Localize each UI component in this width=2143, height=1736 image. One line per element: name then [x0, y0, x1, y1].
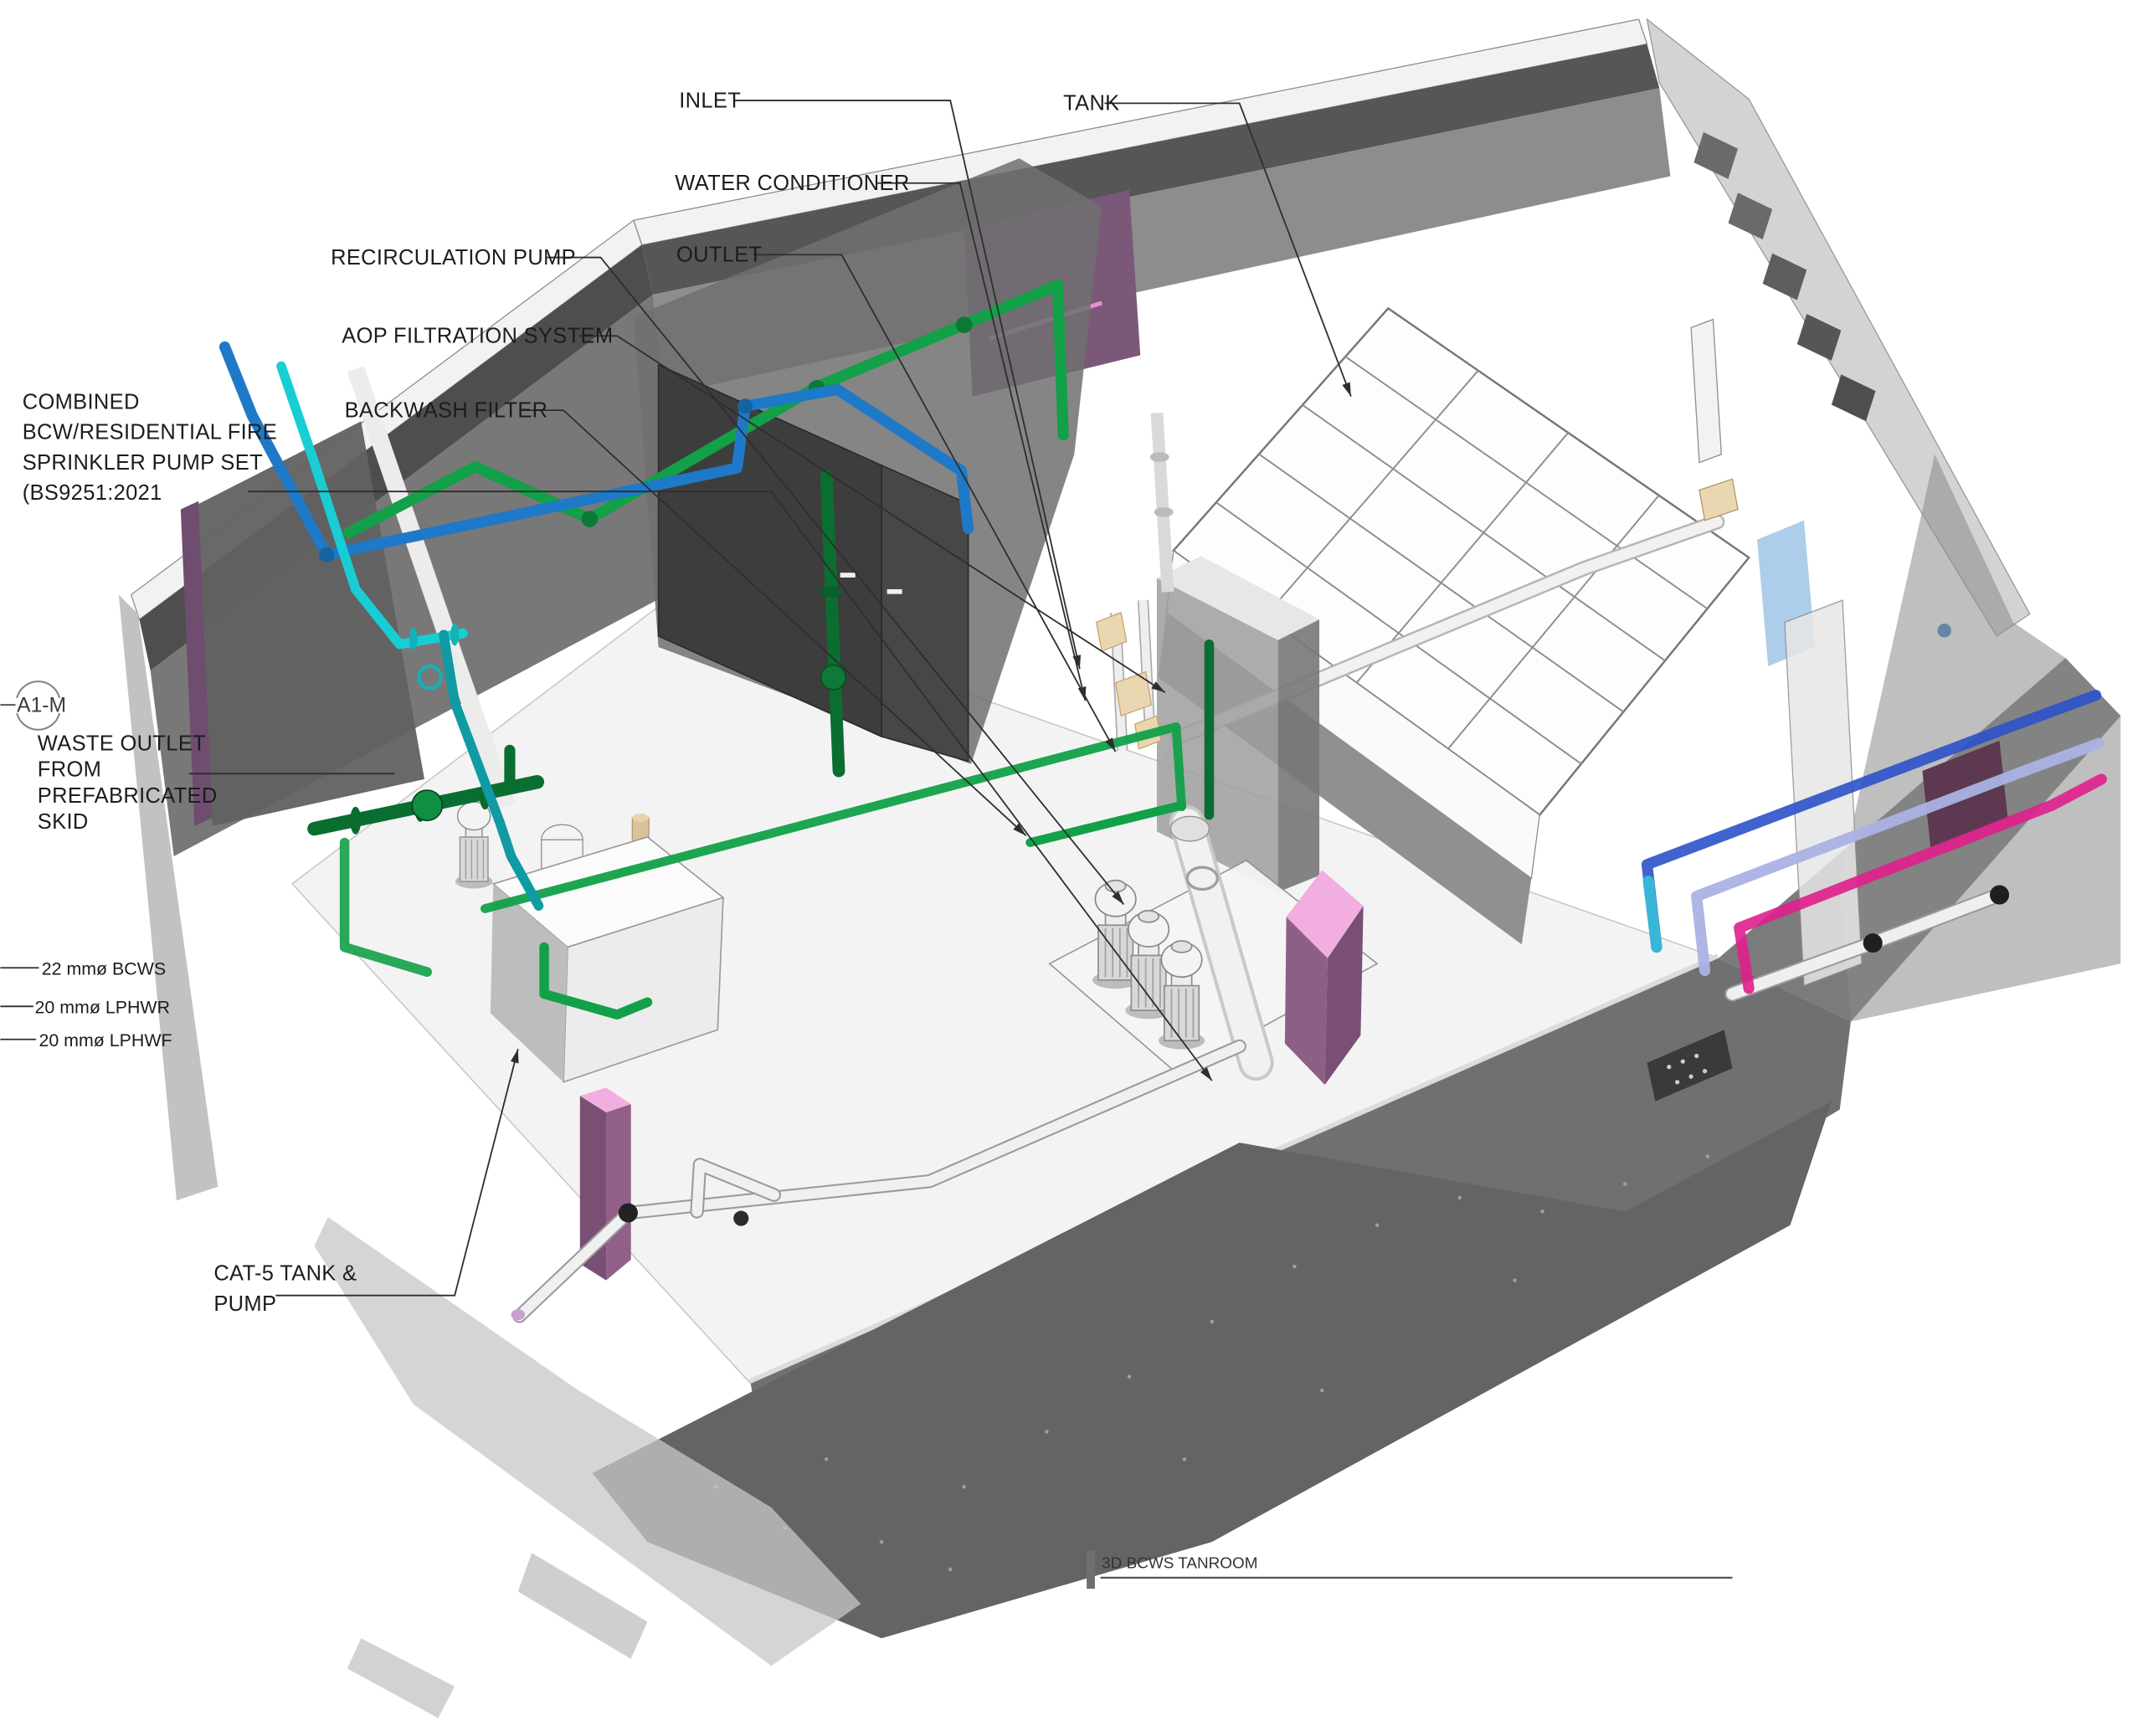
footing-step: [518, 1553, 648, 1659]
green-flange: [820, 587, 841, 598]
door-handle: [887, 589, 902, 594]
green-valve-body: [412, 790, 442, 820]
black-joint: [733, 1211, 748, 1226]
svg-text:PUMP: PUMP: [213, 1292, 276, 1316]
pipe-ring: [1154, 507, 1174, 517]
footing-step: [347, 1638, 455, 1718]
bim-3d-view: INLET WATER CONDITIONER OUTLET RECIRCULA…: [0, 0, 2143, 1736]
view-title-bar: [1087, 1550, 1095, 1589]
view-title-text: 3D BCWS TANROOM: [1102, 1554, 1257, 1572]
pipe-ring: [1150, 452, 1169, 462]
label-tank: TANK: [1063, 92, 1119, 116]
label-pipe-lphwr: 20 mmø LPHWR: [35, 998, 171, 1018]
label-backwash-filter: BACKWASH FILTER: [345, 398, 548, 422]
black-elbow: [619, 1203, 638, 1222]
section-marker-a1m: A1-M: [0, 681, 66, 730]
green-valve: [821, 665, 846, 690]
cylinder-flange: [1170, 816, 1209, 841]
svg-text:WASTE OUTLET: WASTE OUTLET: [38, 732, 206, 755]
black-elbow: [1990, 886, 2009, 905]
tank-riser: [1691, 320, 1721, 463]
label-water-conditioner: WATER CONDITIONER: [675, 172, 909, 195]
blue-elbow: [319, 547, 334, 562]
label-inlet: INLET: [679, 89, 741, 112]
skid-enclosure-side: [1278, 619, 1319, 892]
label-pipe-lphwf: 20 mmø LPHWF: [39, 1030, 172, 1050]
label-pipe-bcws: 22 mmø BCWS: [42, 958, 166, 978]
cat5-pump: [455, 802, 493, 888]
view-title-block: 3D BCWS TANROOM: [1087, 1550, 1732, 1589]
green-flange: [956, 316, 973, 333]
pipe-end-cap: [511, 1309, 525, 1320]
svg-text:BCW/RESIDENTIAL FIRE: BCW/RESIDENTIAL FIRE: [23, 421, 277, 444]
label-aop-filtration-system: AOP FILTRATION SYSTEM: [342, 325, 613, 348]
blue-elbow: [737, 398, 753, 413]
cyan-flange: [409, 628, 418, 650]
green-flange: [350, 807, 361, 835]
label-recirculation-pump: RECIRCULATION PUMP: [331, 246, 576, 270]
door-handle: [840, 573, 856, 578]
svg-text:COMBINED: COMBINED: [23, 390, 140, 413]
pump: [1159, 941, 1205, 1050]
svg-text:CAT-5 TANK &: CAT-5 TANK &: [213, 1262, 357, 1286]
green-elbow: [581, 511, 598, 527]
svg-text:(BS9251:2021: (BS9251:2021: [23, 481, 162, 505]
label-cat5-tank-pump: CAT-5 TANK & PUMP: [213, 1262, 357, 1316]
black-elbow: [1863, 933, 1883, 953]
cyan-flange: [450, 624, 459, 645]
door-leaf-right: [881, 465, 969, 762]
svg-text:SPRINKLER PUMP SET: SPRINKLER PUMP SET: [23, 451, 263, 475]
svg-text:PREFABRICATED: PREFABRICATED: [38, 784, 218, 808]
label-section-marker: A1-M: [17, 694, 66, 716]
tan-standpipe-top: [632, 814, 649, 822]
label-outlet: OUTLET: [676, 243, 763, 266]
tankroom-model-drawing: INLET WATER CONDITIONER OUTLET RECIRCULA…: [0, 0, 2143, 1736]
pink-pillar-side: [606, 1104, 631, 1281]
inlet-pipe: [1157, 413, 1168, 592]
svg-text:SKID: SKID: [38, 810, 89, 834]
brass-valve: [1699, 479, 1738, 520]
svg-text:FROM: FROM: [38, 758, 101, 782]
